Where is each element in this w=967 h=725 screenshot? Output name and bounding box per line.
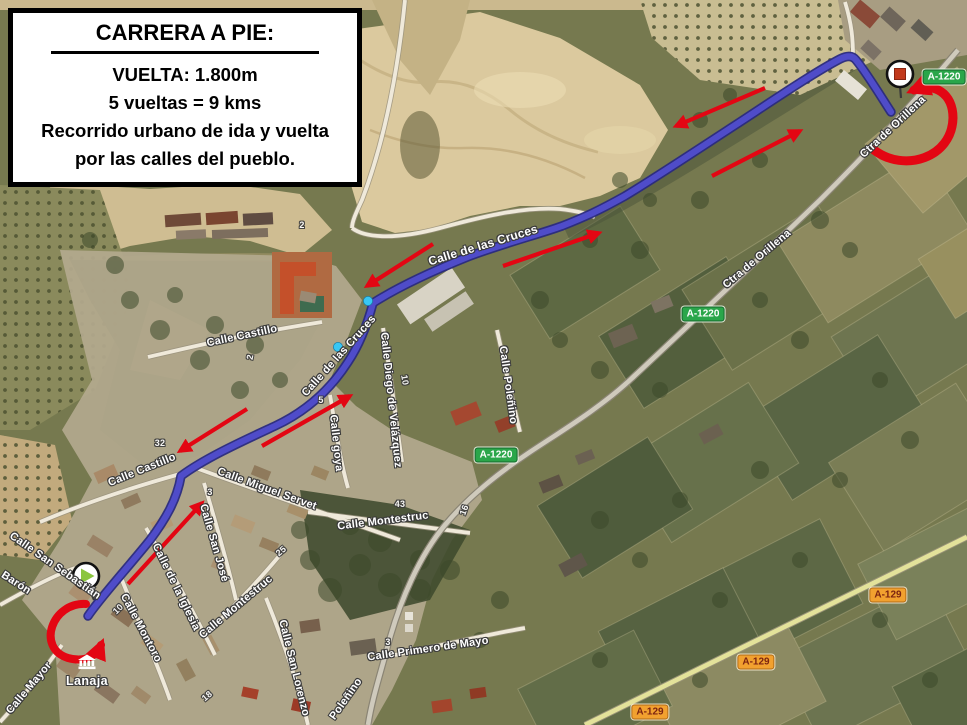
route-waypoint-dot [363, 296, 372, 305]
infobox-line: VUELTA: 1.800m [15, 61, 355, 89]
title-underline [51, 51, 320, 54]
infobox-title: CARRERA A PIE: [15, 20, 355, 46]
infobox-line: Recorrido urbano de ida y vuelta [15, 117, 355, 145]
race-infobox: CARRERA A PIE: VUELTA: 1.800m 5 vueltas … [8, 8, 362, 187]
infobox-line: por las calles del pueblo. [15, 145, 355, 173]
map-canvas[interactable]: Lanaja Calle de las CrucesCalle de las C… [0, 0, 967, 725]
route-waypoint-dot [333, 342, 342, 351]
infobox-line: 5 vueltas = 9 kms [15, 89, 355, 117]
finish-square-icon [895, 69, 906, 80]
